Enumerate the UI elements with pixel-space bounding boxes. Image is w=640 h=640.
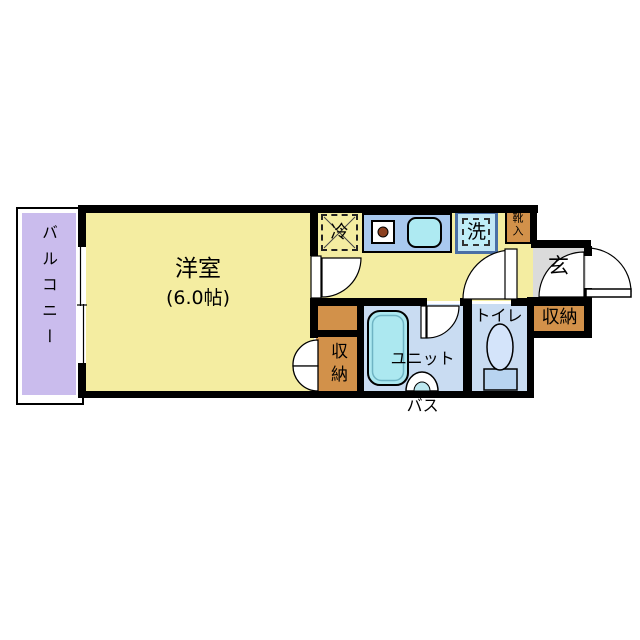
room-size-label: (6.0帖) — [96, 287, 300, 309]
wall-entry-closet-bottom — [527, 331, 592, 338]
closet-entrance-label: 収納 — [532, 306, 587, 330]
shoe-cabinet-label: 靴入 — [512, 212, 523, 238]
wall-hall-bottom-c — [511, 298, 527, 306]
wall-room-right-upper — [310, 213, 318, 256]
wall-closet-divider — [318, 330, 357, 337]
entrance-label: 玄 — [533, 254, 584, 278]
wall-entrance-top — [531, 240, 591, 248]
unit-bath-label: ユニット バス — [362, 324, 463, 440]
closet-room-label: 収納 — [328, 342, 345, 388]
room-label: 洋室 — [96, 257, 300, 281]
wall-left-lower — [78, 363, 86, 398]
unit-bath-label-line2: バス — [407, 396, 439, 415]
front-door-icon — [586, 248, 631, 297]
toilet-label: トイレ — [470, 306, 527, 326]
washer-label: 洗 — [455, 211, 498, 254]
wall-porch-step — [531, 213, 537, 243]
closet-room-upper — [316, 304, 359, 332]
wall-entrance-bottom — [527, 297, 592, 306]
stove-icon — [371, 220, 395, 244]
wall-left-upper — [78, 205, 86, 247]
wall-room-right-mid — [310, 298, 318, 338]
balcony-label: バルコニー — [40, 224, 56, 354]
refrigerator-label: 冷 — [321, 214, 358, 251]
unit-bath-label-line1: ユニット — [391, 349, 455, 368]
wall-hall-bottom-a — [318, 298, 427, 306]
floorplan: バルコニー 洋室 (6.0帖) 冷 洗 靴入 玄 ユニット バス トイレ 収納 … — [0, 0, 640, 640]
kitchen-sink-icon — [407, 217, 442, 248]
wall-right-upper — [584, 246, 592, 256]
